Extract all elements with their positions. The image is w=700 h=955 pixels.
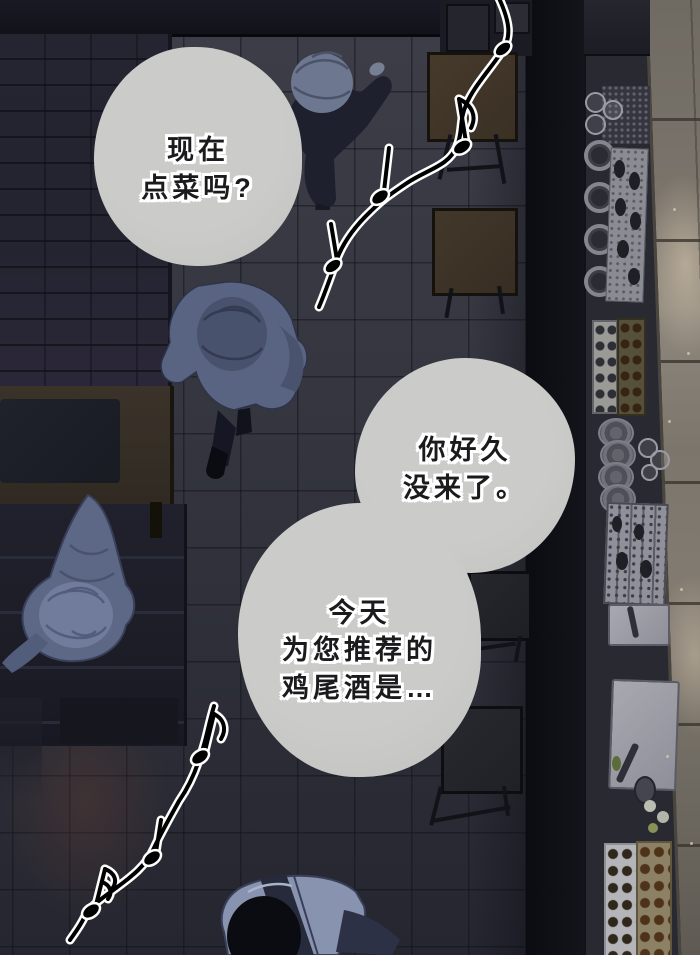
bubble-2-line-2: 没来了。 — [403, 470, 527, 507]
bottle — [616, 552, 628, 570]
dust-speck — [680, 588, 683, 591]
bottle-crate — [604, 843, 638, 955]
garnish-fruit — [657, 811, 669, 823]
glassware — [603, 100, 623, 120]
bottle-tray — [592, 320, 618, 414]
bubble-2-line-1: 你好久 — [419, 432, 512, 469]
bottle-tray — [617, 318, 646, 416]
lime — [648, 823, 658, 833]
table-leg — [150, 502, 162, 538]
machine-panel — [494, 2, 530, 34]
booth-bench-end — [60, 698, 178, 744]
bottle — [634, 524, 644, 540]
lime — [612, 756, 621, 771]
counter-equipment — [584, 0, 650, 56]
bottle — [617, 240, 629, 258]
glassware — [641, 464, 658, 481]
speech-bubble-1: 现在 点菜吗? — [94, 47, 302, 266]
bubble-3-line-2: 为您推荐的 — [282, 632, 437, 669]
register-machine — [440, 0, 532, 56]
dust-speck — [668, 420, 671, 423]
speech-bubble-3: 今天 为您推荐的 鸡尾酒是… — [238, 503, 481, 777]
comic-panel: 现在 点菜吗? 你好久 没来了。 今天 为您推荐的 鸡尾酒是… — [0, 0, 700, 955]
bottle — [630, 212, 641, 230]
garnish-fruit — [644, 800, 656, 812]
bottle — [615, 198, 626, 216]
bottle — [612, 516, 622, 532]
bar-table — [432, 208, 518, 296]
bottle-crate — [636, 841, 672, 955]
bubble-1-line-1: 现在 — [167, 132, 229, 169]
table-runner — [0, 399, 120, 483]
bottle — [629, 172, 640, 190]
booth-bench-side — [0, 698, 42, 802]
drying-mat — [605, 147, 648, 302]
dust-speck — [687, 352, 690, 355]
bubble-3-line-3: 鸡尾酒是… — [282, 670, 437, 707]
bubble-1-line-2: 点菜吗? — [141, 170, 255, 207]
sink-tray — [608, 604, 670, 646]
machine-panel — [446, 4, 490, 52]
bubble-3-line-1: 今天 — [329, 595, 391, 632]
bottle — [628, 268, 640, 285]
dust-speck — [666, 755, 669, 758]
bar-table — [427, 52, 518, 142]
dust-speck — [673, 208, 676, 211]
bottle — [640, 560, 652, 578]
glassware — [585, 114, 606, 135]
dust-speck — [690, 842, 693, 845]
bottle — [614, 160, 625, 178]
